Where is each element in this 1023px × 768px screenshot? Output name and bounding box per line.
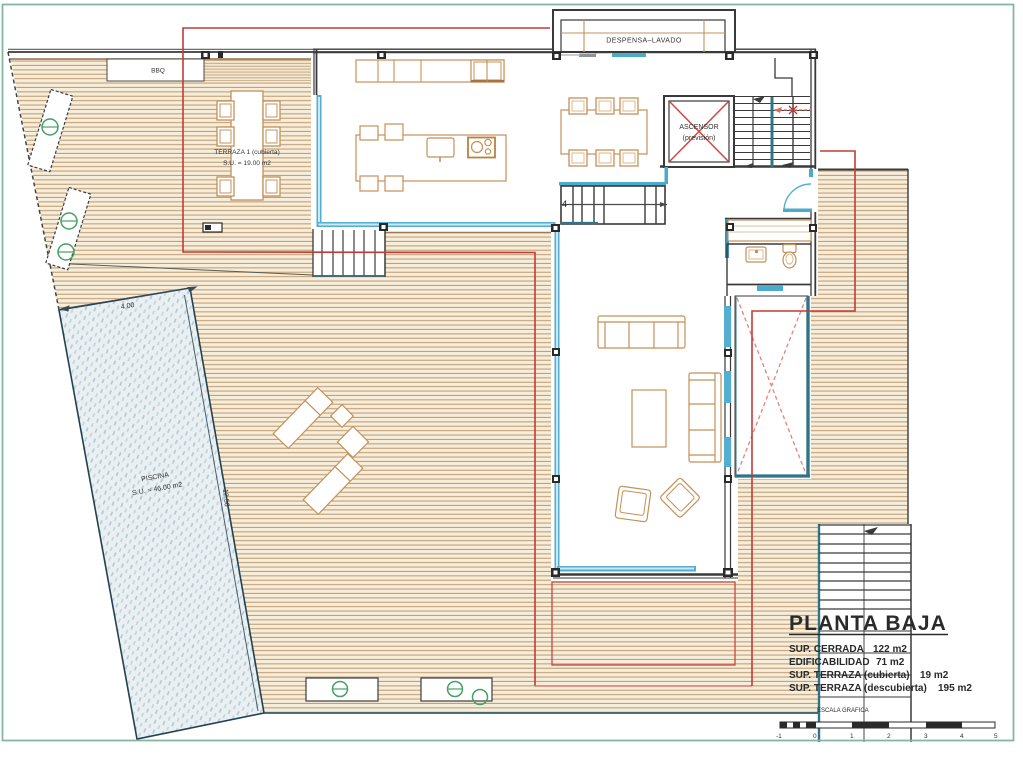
svg-text:TERRAZA 1 (cubierta): TERRAZA 1 (cubierta) [214, 149, 280, 156]
svg-text:4: 4 [562, 199, 567, 209]
svg-text:195 m2: 195 m2 [938, 683, 972, 694]
svg-text:ESCALA GRAFICA: ESCALA GRAFICA [817, 708, 869, 714]
svg-text:PLANTA BAJA: PLANTA BAJA [789, 612, 947, 635]
svg-text:1: 1 [850, 733, 854, 740]
svg-text:(previsión): (previsión) [683, 135, 716, 142]
svg-text:19 m2: 19 m2 [920, 670, 949, 681]
svg-text:SUP. CERRADA: SUP. CERRADA [789, 644, 864, 655]
svg-text:DESPENSA–LAVADO: DESPENSA–LAVADO [606, 38, 682, 45]
svg-text:BBQ: BBQ [151, 68, 165, 75]
svg-text:5: 5 [994, 733, 998, 740]
svg-text:S.U. = 19.00 m2: S.U. = 19.00 m2 [223, 160, 271, 167]
svg-text:3: 3 [924, 733, 928, 740]
svg-text:71 m2: 71 m2 [876, 657, 905, 668]
svg-text:ASCENSOR: ASCENSOR [679, 124, 718, 131]
svg-text:4: 4 [960, 733, 964, 740]
svg-text:SUP. TERRAZA (descubierta): SUP. TERRAZA (descubierta) [789, 683, 927, 694]
svg-text:122 m2: 122 m2 [873, 644, 907, 655]
svg-text:0: 0 [813, 733, 817, 740]
svg-text:SUP. TERRAZA (cubierta): SUP. TERRAZA (cubierta) [789, 670, 910, 681]
svg-text:EDIFICABILIDAD: EDIFICABILIDAD [789, 657, 870, 668]
svg-text:-1: -1 [776, 733, 782, 740]
svg-text:2: 2 [887, 733, 891, 740]
